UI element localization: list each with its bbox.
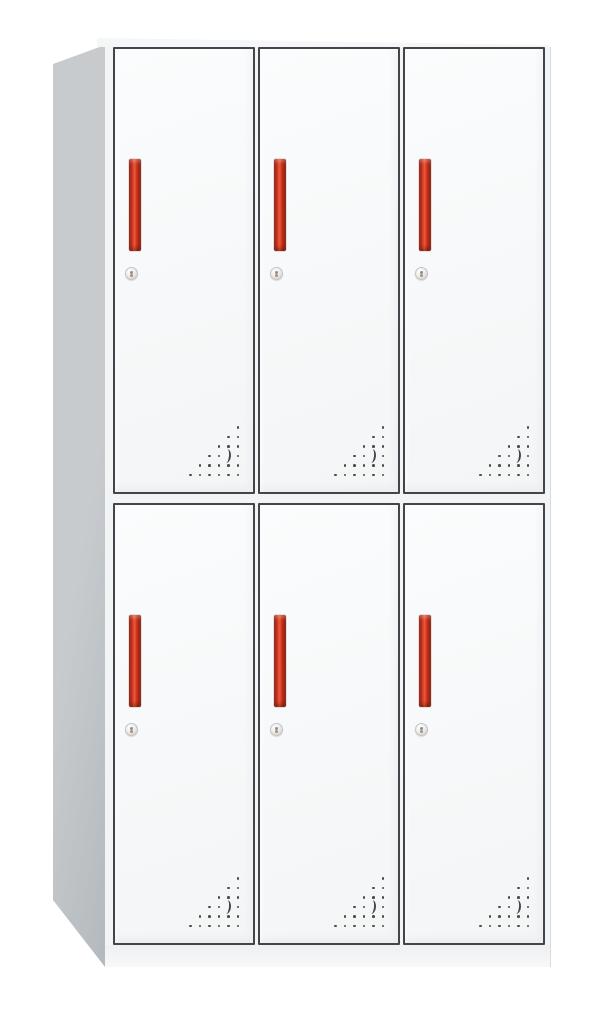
locker-door-top-center <box>258 47 400 494</box>
vent-hole <box>218 464 221 467</box>
vent-hole <box>382 915 385 918</box>
vent-hole <box>208 455 211 458</box>
vent-hole <box>237 426 240 429</box>
vent-hole <box>227 925 230 928</box>
vent-hole <box>498 464 501 467</box>
vent-hole <box>189 474 192 477</box>
keyhole-lock <box>270 267 283 280</box>
vent-hole <box>498 925 501 928</box>
vent-hole <box>363 906 366 909</box>
cabinet-front <box>105 47 551 967</box>
vent-hole <box>363 474 366 477</box>
vent-hole <box>237 915 240 918</box>
vent-hole <box>218 445 221 448</box>
vent-hole <box>508 474 511 477</box>
vent-hole <box>208 906 211 909</box>
vent-hole <box>227 896 230 899</box>
locker-door-bottom-right <box>403 503 545 945</box>
vent-hole <box>527 925 530 928</box>
vent-hole <box>208 925 211 928</box>
vent-hole <box>237 925 240 928</box>
vent-hole <box>489 925 492 928</box>
vent-hole <box>199 925 202 928</box>
vent-hole <box>489 474 492 477</box>
door-grid <box>113 47 545 945</box>
door-handle <box>419 615 431 707</box>
vent-hole <box>199 915 202 918</box>
vent-crescent-slot <box>366 900 376 915</box>
vent-hole <box>372 464 375 467</box>
vent-hole <box>208 915 211 918</box>
vent-hole <box>372 896 375 899</box>
vent-hole <box>527 877 530 880</box>
vent-hole <box>227 887 230 890</box>
door-handle <box>419 159 431 251</box>
vent-hole <box>237 445 240 448</box>
vent-hole <box>479 925 482 928</box>
vent-hole <box>382 877 385 880</box>
vent-hole <box>382 464 385 467</box>
vent-hole <box>199 474 202 477</box>
product-photo-six-door-locker <box>0 0 605 1009</box>
vent-hole <box>508 445 511 448</box>
vent-hole <box>527 915 530 918</box>
vent-hole <box>237 877 240 880</box>
keyhole-lock <box>415 267 428 280</box>
vent-hole <box>344 925 347 928</box>
vent-hole <box>372 925 375 928</box>
vent-hole <box>489 915 492 918</box>
vent-hole <box>227 464 230 467</box>
vent-hole <box>498 915 501 918</box>
vent-hole <box>353 464 356 467</box>
door-handle <box>129 159 141 251</box>
vent-hole <box>508 925 511 928</box>
vent-hole <box>517 464 520 467</box>
vent-hole <box>382 455 385 458</box>
vent-hole <box>218 896 221 899</box>
vent-hole <box>527 474 530 477</box>
vent-hole <box>508 464 511 467</box>
vent-hole <box>334 474 337 477</box>
vent-hole <box>498 906 501 909</box>
vent-hole <box>382 436 385 439</box>
cabinet-base <box>105 945 550 967</box>
vent-hole <box>508 455 511 458</box>
vent-crescent-slot <box>366 449 376 464</box>
vent-hole <box>344 915 347 918</box>
vent-hole <box>218 455 221 458</box>
vent-hole <box>237 906 240 909</box>
vent-hole <box>344 474 347 477</box>
vent-hole <box>227 474 230 477</box>
vent-hole <box>382 426 385 429</box>
vent-hole <box>382 906 385 909</box>
vent-hole <box>363 896 366 899</box>
vent-hole <box>517 925 520 928</box>
vent-hole <box>227 445 230 448</box>
ventilation-holes <box>189 877 239 927</box>
vent-hole <box>508 915 511 918</box>
vent-hole <box>363 925 366 928</box>
vent-hole <box>382 896 385 899</box>
vent-hole <box>498 455 501 458</box>
vent-hole <box>508 896 511 899</box>
keyhole-lock <box>270 723 283 736</box>
vent-hole <box>372 474 375 477</box>
ventilation-holes <box>334 877 384 927</box>
keyhole-lock <box>125 723 138 736</box>
vent-hole <box>237 896 240 899</box>
ventilation-holes <box>479 426 529 476</box>
vent-hole <box>527 426 530 429</box>
vent-hole <box>199 464 202 467</box>
cabinet-side-panel <box>53 40 105 967</box>
ventilation-holes <box>334 426 384 476</box>
vent-hole <box>527 896 530 899</box>
ventilation-holes <box>479 877 529 927</box>
keyhole-lock <box>125 267 138 280</box>
vent-hole <box>489 464 492 467</box>
vent-hole <box>517 474 520 477</box>
vent-hole <box>517 915 520 918</box>
vent-hole <box>227 915 230 918</box>
vent-hole <box>237 436 240 439</box>
vent-hole <box>353 455 356 458</box>
door-handle <box>129 615 141 707</box>
keyhole-lock <box>415 723 428 736</box>
vent-hole <box>498 474 501 477</box>
vent-hole <box>344 464 347 467</box>
vent-hole <box>517 887 520 890</box>
vent-hole <box>527 445 530 448</box>
vent-hole <box>527 455 530 458</box>
vent-hole <box>189 925 192 928</box>
vent-hole <box>527 906 530 909</box>
vent-hole <box>218 474 221 477</box>
vent-hole <box>363 445 366 448</box>
vent-hole <box>363 455 366 458</box>
vent-hole <box>517 436 520 439</box>
vent-hole <box>218 906 221 909</box>
vent-hole <box>218 925 221 928</box>
vent-hole <box>382 445 385 448</box>
vent-crescent-slot <box>221 900 231 915</box>
vent-hole <box>527 436 530 439</box>
vent-hole <box>372 445 375 448</box>
vent-hole <box>237 887 240 890</box>
vent-crescent-slot <box>511 900 521 915</box>
vent-hole <box>517 445 520 448</box>
vent-crescent-slot <box>511 449 521 464</box>
vent-hole <box>334 925 337 928</box>
vent-hole <box>237 474 240 477</box>
vent-hole <box>382 887 385 890</box>
locker-door-top-left <box>113 47 255 494</box>
vent-hole <box>237 455 240 458</box>
door-handle <box>274 159 286 251</box>
locker-door-bottom-center <box>258 503 400 945</box>
vent-hole <box>353 906 356 909</box>
vent-hole <box>237 464 240 467</box>
locker-door-top-right <box>403 47 545 494</box>
vent-hole <box>527 887 530 890</box>
vent-hole <box>527 464 530 467</box>
vent-hole <box>508 906 511 909</box>
door-handle <box>274 615 286 707</box>
vent-hole <box>372 915 375 918</box>
vent-hole <box>479 474 482 477</box>
vent-hole <box>227 436 230 439</box>
vent-hole <box>353 915 356 918</box>
vent-hole <box>372 436 375 439</box>
vent-hole <box>517 896 520 899</box>
vent-hole <box>208 474 211 477</box>
vent-hole <box>382 474 385 477</box>
vent-hole <box>218 915 221 918</box>
vent-hole <box>363 464 366 467</box>
ventilation-holes <box>189 426 239 476</box>
vent-hole <box>208 464 211 467</box>
vent-hole <box>363 915 366 918</box>
vent-crescent-slot <box>221 449 231 464</box>
locker-door-bottom-left <box>113 503 255 945</box>
vent-hole <box>382 925 385 928</box>
cabinet-top-panel <box>97 37 549 47</box>
vent-hole <box>372 887 375 890</box>
vent-hole <box>353 474 356 477</box>
vent-hole <box>353 925 356 928</box>
